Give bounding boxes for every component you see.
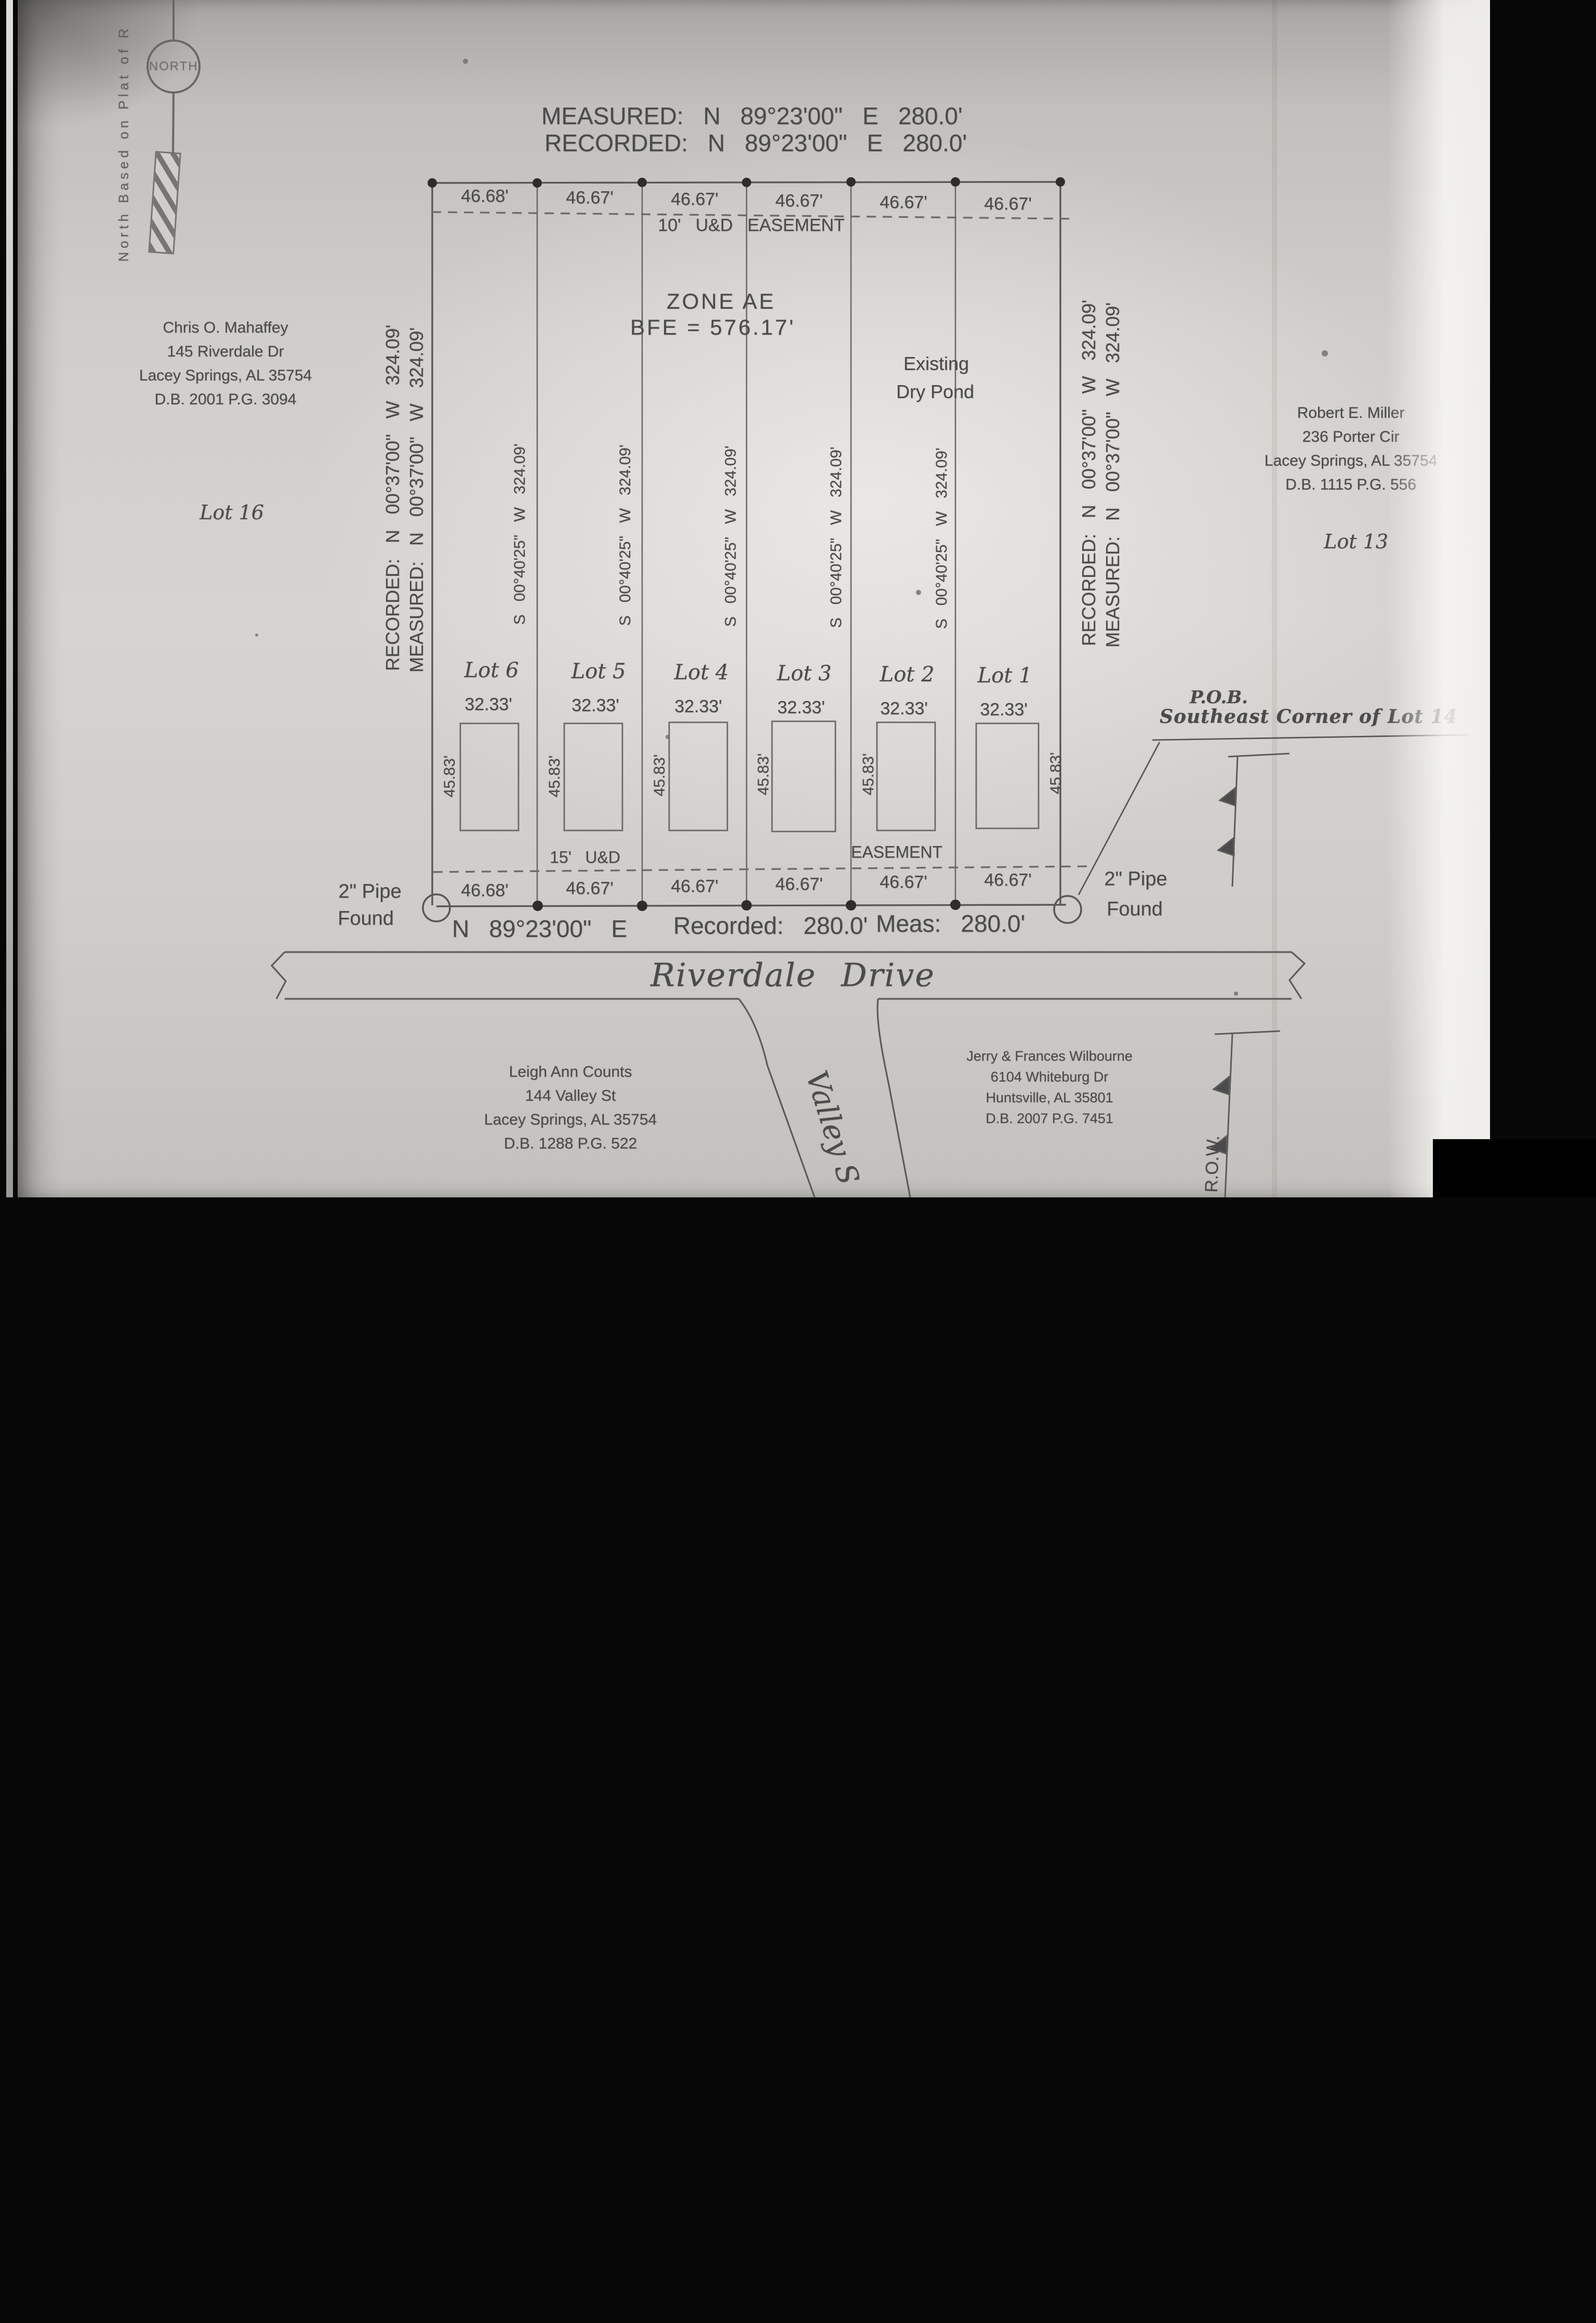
lot5-label: Lot 5: [571, 659, 626, 683]
north-line-recorded: RECORDED: N 89°23'00" E 280.0': [544, 129, 967, 157]
frontage-lot4: 32.33': [674, 697, 722, 717]
pipe-found-right-2: Found: [1107, 899, 1163, 921]
frontage-lot1: 32.33': [980, 700, 1028, 720]
plat-linework: [18, 0, 1490, 1197]
owner-se-name: Jerry & Frances Wilbourne: [966, 1046, 1133, 1066]
pob-label: P.O.B.: [1190, 687, 1248, 708]
building-width-lot3: 45.83': [755, 754, 773, 796]
dim-bottom-lot4: 46.67': [671, 877, 719, 897]
frontage-lot3: 32.33': [777, 698, 825, 718]
dim-bottom-lot6: 46.68': [461, 881, 509, 901]
owner-sw-deed: D.B. 1288 P.G. 522: [484, 1132, 657, 1156]
building-width-lot1: 45.83': [1047, 753, 1065, 795]
east-boundary-measured: MEASURED: N 00°37'00" W 324.09': [1102, 302, 1124, 648]
photo-glare-band: [1387, 0, 1490, 1197]
owner-block-southwest: Leigh Ann Counts 144 Valley St Lacey Spr…: [484, 1060, 657, 1156]
lot2-label: Lot 2: [880, 663, 935, 687]
lot1-label: Lot 1: [978, 664, 1032, 688]
dim-top-lot4: 46.67': [671, 190, 719, 210]
dim-bottom-lot3: 46.67': [775, 875, 823, 895]
row-label: R.O.W.: [1202, 1136, 1224, 1193]
owner-se-city: Huntsville, AL 35801: [966, 1087, 1133, 1108]
screen-corner-black: Valley mls.com: [1433, 1139, 1596, 1197]
dim-top-lot6: 46.68': [461, 187, 509, 207]
lot4-label: Lot 4: [674, 661, 729, 684]
plat-document: NORTH North Based on Plat of R MEASURED:…: [18, 0, 1490, 1197]
dim-bottom-lot1: 46.67': [984, 870, 1032, 891]
dim-top-lot1: 46.67': [984, 194, 1032, 215]
owner-nw-name: Chris O. Mahaffey: [139, 316, 312, 340]
owner-nw-street: 145 Riverdale Dr: [139, 340, 312, 364]
building-width-lot4: 45.83': [651, 755, 669, 797]
lot6-label: Lot 6: [464, 658, 519, 682]
dim-bottom-lot2: 46.67': [880, 873, 927, 893]
building-width-lot5: 45.83': [546, 756, 564, 798]
owner-sw-street: 144 Valley St: [484, 1084, 657, 1108]
adjacent-lot16-label: Lot 16: [199, 501, 264, 524]
photo-reflection-band: [1272, 0, 1277, 1197]
frontage-lot5: 32.33': [571, 696, 619, 716]
lot-line-bearing-4: S 00°40'25" W 324.09': [828, 447, 845, 628]
lot-line-bearing-1: S 00°40'25" W 324.09': [511, 444, 529, 625]
lot3-label: Lot 3: [777, 662, 832, 685]
east-boundary-recorded: RECORDED: N 00°37'00" W 324.09': [1078, 300, 1100, 646]
north-arrow-label: NORTH: [149, 59, 198, 74]
owner-block-southeast: Jerry & Frances Wilbourne 6104 Whiteburg…: [966, 1046, 1133, 1129]
pipe-found-left-1: 2" Pipe: [338, 881, 401, 903]
lot-line-bearing-5: S 00°40'25" W 324.09': [933, 448, 951, 629]
owner-nw-city: Lacey Springs, AL 35754: [139, 364, 312, 388]
north-arrow-icon: [148, 0, 199, 154]
lot-line-bearing-3: S 00°40'25" W 324.09': [722, 446, 740, 627]
south-line-recorded: Recorded: 280.0': [673, 912, 868, 940]
riverdale-drive-label: Riverdale Drive: [650, 956, 935, 994]
easement-bottom-left-label: 15' U&D: [550, 848, 620, 867]
owner-sw-city: Lacey Springs, AL 35754: [484, 1108, 657, 1132]
dry-pond-label-2: Dry Pond: [896, 381, 974, 403]
easement-top-label: 10' U&D EASEMENT: [658, 216, 844, 236]
west-boundary-measured: MEASURED: N 00°37'00" W 324.09': [406, 327, 428, 672]
pipe-found-left-2: Found: [338, 908, 394, 930]
north-reference-note: North Based on Plat of R: [116, 25, 132, 262]
owner-sw-name: Leigh Ann Counts: [484, 1060, 657, 1084]
screen-bezel-highlight: [6, 0, 13, 1197]
row-marker-lines: [1211, 754, 1289, 1197]
flood-zone-label: ZONE AE: [667, 289, 776, 314]
building-width-lot2: 45.83': [860, 754, 877, 796]
frontage-lot6: 32.33': [464, 695, 512, 715]
owner-se-street: 6104 Whiteburg Dr: [966, 1066, 1133, 1087]
building-width-lot6: 45.83': [441, 756, 459, 798]
owner-block-northwest: Chris O. Mahaffey 145 Riverdale Dr Lacey…: [139, 316, 312, 412]
dim-bottom-lot5: 46.67': [566, 879, 614, 899]
frontage-lot2: 32.33': [880, 699, 928, 719]
dim-top-lot2: 46.67': [880, 193, 927, 213]
owner-nw-deed: D.B. 2001 P.G. 3094: [139, 388, 312, 412]
adjacent-lot13-label: Lot 13: [1324, 530, 1388, 553]
dim-top-lot3: 46.67': [775, 191, 823, 212]
dim-top-lot5: 46.67': [566, 188, 614, 208]
west-boundary-recorded: RECORDED: N 00°37'00" W 324.09': [382, 325, 404, 671]
flood-bfe-label: BFE = 576.17': [630, 315, 795, 340]
pipe-found-right-1: 2" Pipe: [1104, 868, 1167, 891]
south-line-measured: Meas: 280.0': [876, 909, 1025, 938]
south-line-bearing: N 89°23'00" E: [452, 915, 627, 943]
north-line-measured: MEASURED: N 89°23'00" E 280.0': [541, 102, 963, 130]
lot-line-bearing-2: S 00°40'25" W 324.09': [617, 445, 634, 626]
easement-bottom-right-label: EASEMENT: [851, 843, 942, 862]
dry-pond-label-1: Existing: [903, 353, 969, 375]
owner-se-deed: D.B. 2007 P.G. 7451: [966, 1108, 1133, 1129]
